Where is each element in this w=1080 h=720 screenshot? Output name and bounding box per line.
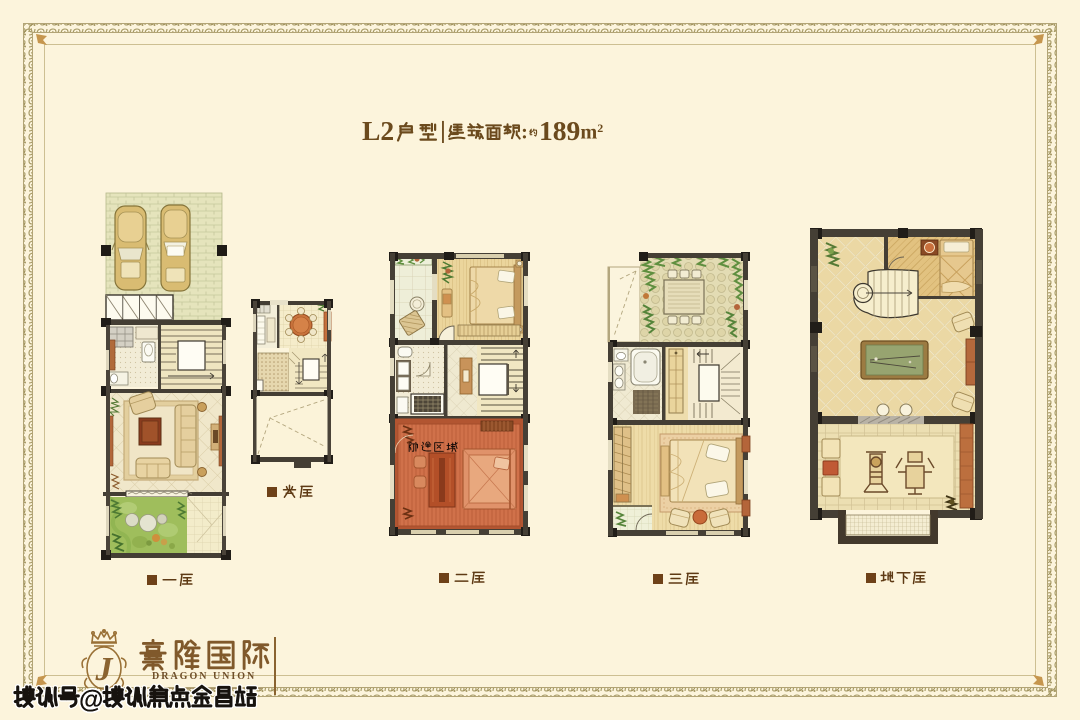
svg-text:@: @	[79, 686, 103, 714]
